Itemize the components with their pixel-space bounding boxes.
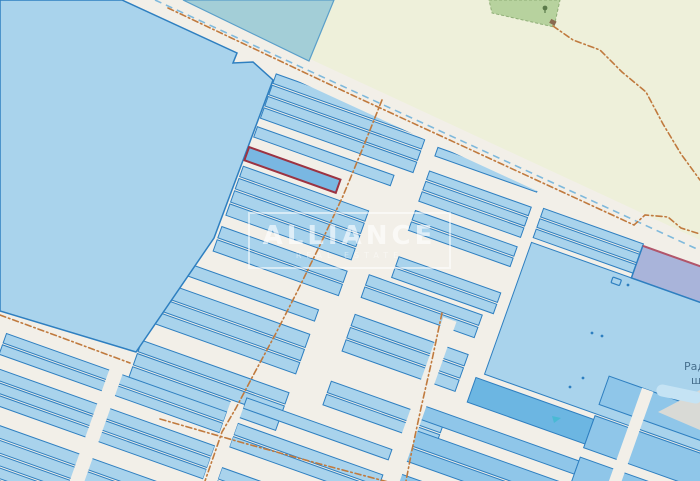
poi-dot-icon (569, 386, 572, 389)
poi-dot-icon (601, 335, 604, 338)
district-label-2: ш (691, 374, 700, 387)
district-label: Рад (684, 360, 700, 373)
cadastral-map[interactable]: Рад ш (0, 0, 700, 481)
poi-dot-icon (627, 284, 630, 287)
map-canvas[interactable]: Рад ш (0, 0, 700, 481)
poi-dot-icon (582, 377, 585, 380)
large-parcel[interactable] (0, 0, 273, 352)
poi-dot-icon (591, 332, 594, 335)
